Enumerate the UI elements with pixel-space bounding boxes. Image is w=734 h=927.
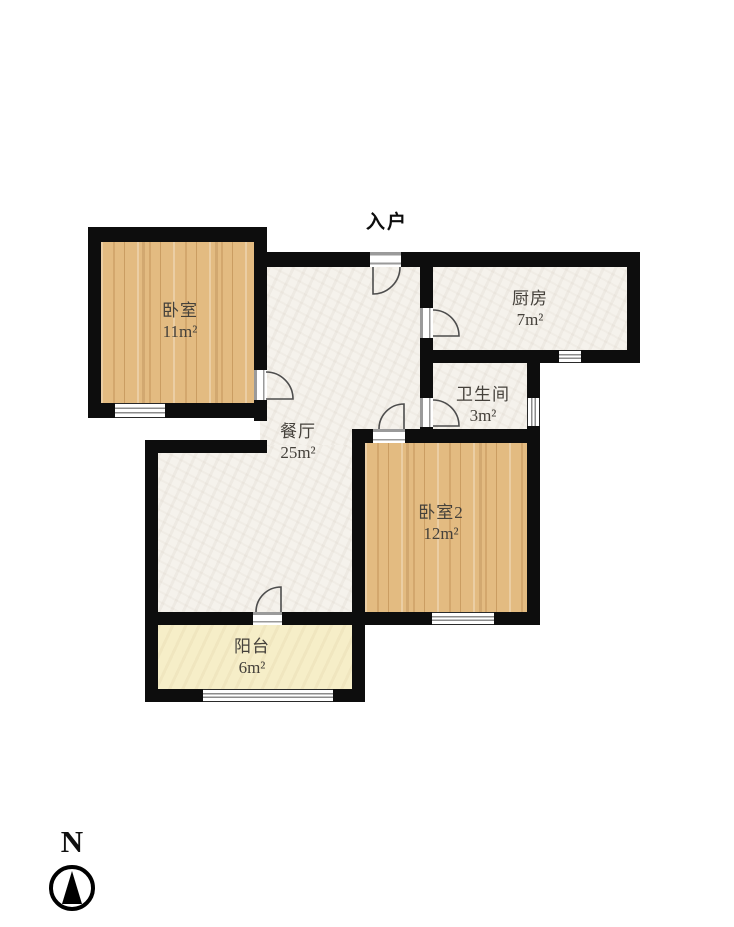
wall [352, 612, 432, 625]
room-area: 7m² [470, 309, 590, 330]
window [203, 689, 333, 702]
room-name: 厨房 [470, 288, 590, 309]
wall [145, 440, 158, 702]
window [432, 612, 494, 625]
wall [405, 429, 540, 443]
wall [145, 689, 203, 702]
room-area: 6m² [192, 657, 312, 678]
room-area: 12m² [381, 523, 501, 544]
wall [401, 252, 640, 267]
wall [527, 426, 540, 625]
wall [145, 612, 253, 625]
wall [254, 227, 267, 370]
dining-floor-upper [260, 258, 426, 445]
wall [494, 612, 540, 625]
wall [282, 612, 352, 625]
door-threshold [370, 252, 401, 267]
window [115, 403, 165, 418]
compass-north-label: N [46, 824, 98, 860]
door-threshold [253, 612, 282, 625]
room-name: 卧室2 [381, 502, 501, 523]
compass-needle-icon [62, 871, 82, 904]
wall [627, 252, 640, 363]
balcony-label: 阳台 6m² [192, 636, 312, 678]
door-threshold [420, 308, 433, 338]
wall [165, 403, 267, 418]
room-name: 卫生间 [423, 384, 543, 405]
room-name: 阳台 [192, 636, 312, 657]
wall [254, 252, 370, 267]
door-threshold [254, 370, 267, 400]
wall [88, 403, 115, 418]
door-threshold [373, 429, 405, 443]
dining-label: 餐厅 25m² [238, 421, 358, 463]
wall [88, 227, 101, 418]
compass-icon [49, 865, 95, 911]
wall [333, 689, 365, 702]
room-area: 25m² [238, 442, 358, 463]
wall [352, 429, 365, 702]
window [559, 350, 581, 363]
room-name: 卧室 [120, 300, 240, 321]
wall [420, 267, 433, 308]
dining-floor-lower [150, 445, 358, 618]
bedroom2-label: 卧室2 12m² [381, 502, 501, 544]
kitchen-label: 厨房 7m² [470, 288, 590, 330]
wall [581, 350, 640, 363]
bathroom-label: 卫生间 3m² [423, 384, 543, 426]
bedroom1-label: 卧室 11m² [120, 300, 240, 342]
wall [88, 227, 267, 242]
room-area: 3m² [423, 405, 543, 426]
room-area: 11m² [120, 321, 240, 342]
entry-label: 入户 [352, 207, 422, 234]
room-name: 餐厅 [238, 421, 358, 442]
floor-plan: 入户 卧室 11m² 厨房 7m² 卫生间 3m² 餐厅 25m² 卧室2 12… [0, 0, 734, 927]
